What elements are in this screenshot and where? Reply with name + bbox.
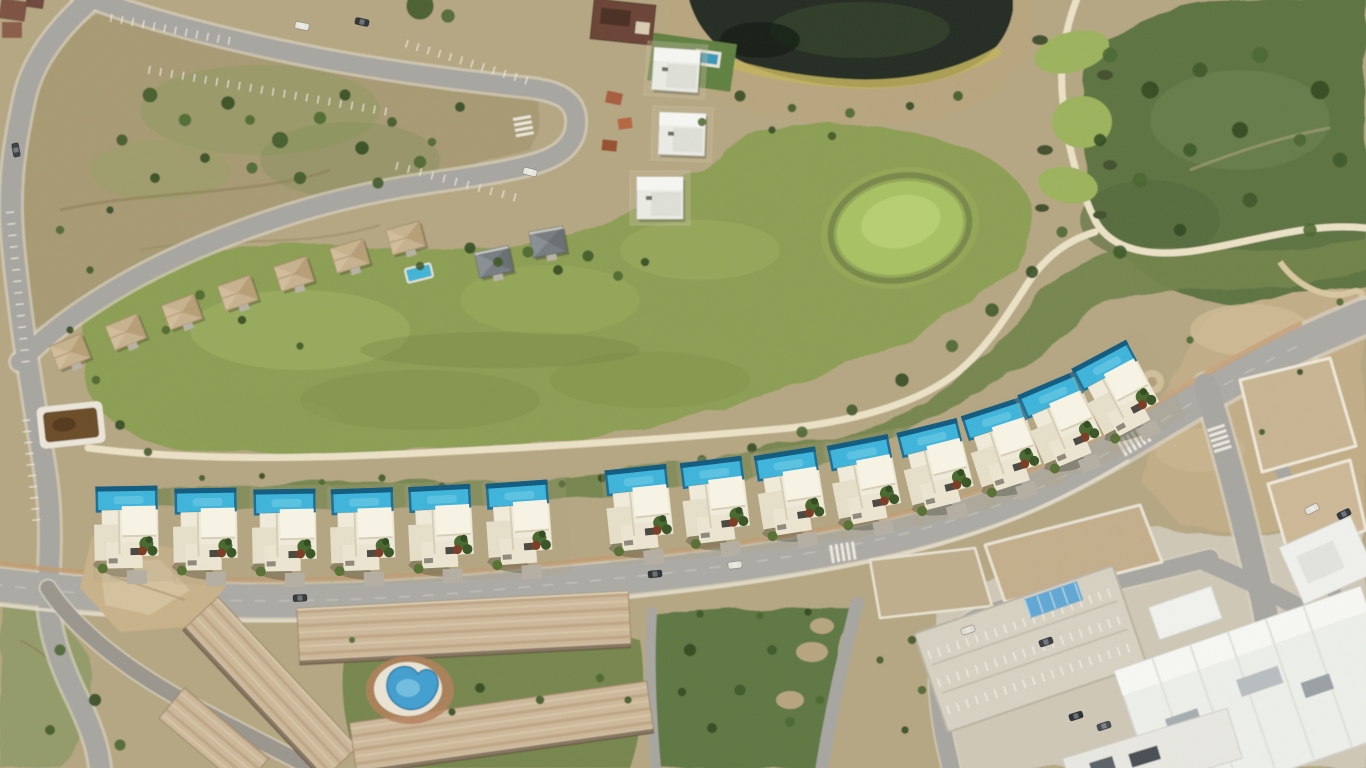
aerial-satellite-photo [0,0,1366,768]
satellite-scene [0,0,1366,768]
photo-grain-overlay [0,0,1366,768]
